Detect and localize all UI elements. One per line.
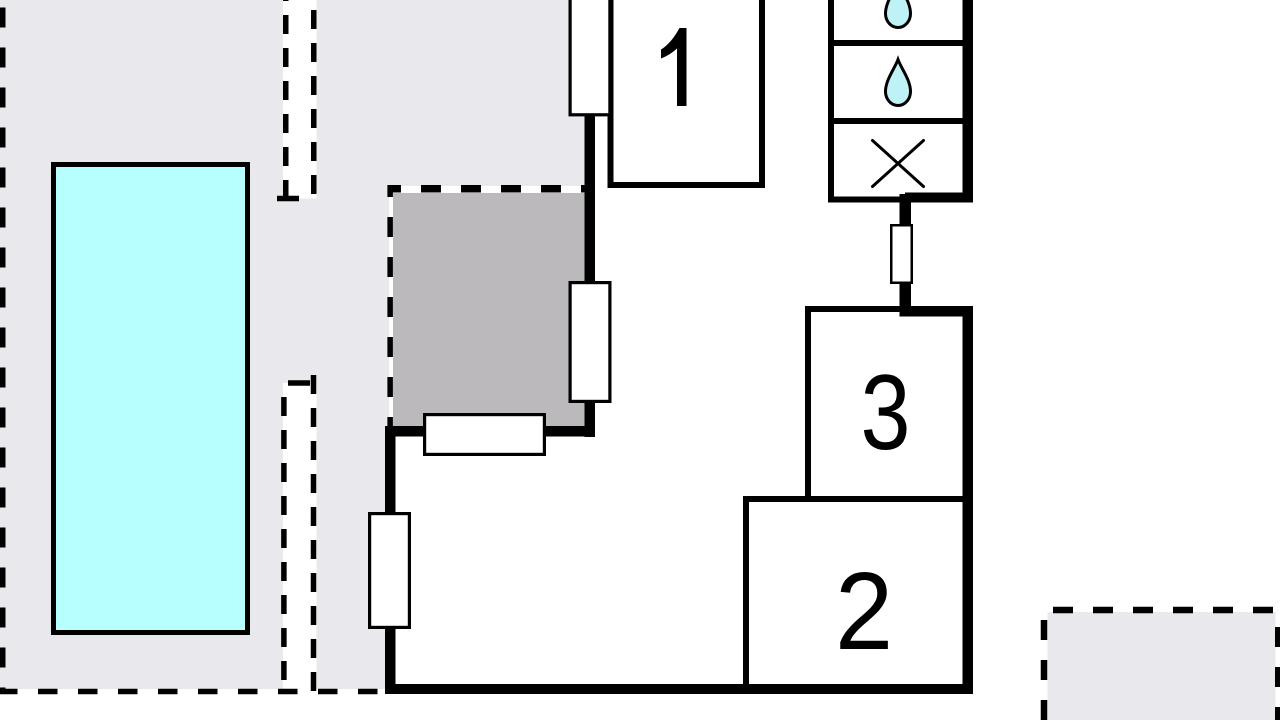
svg-text:2: 2 xyxy=(835,550,893,673)
svg-text:3: 3 xyxy=(861,353,911,472)
